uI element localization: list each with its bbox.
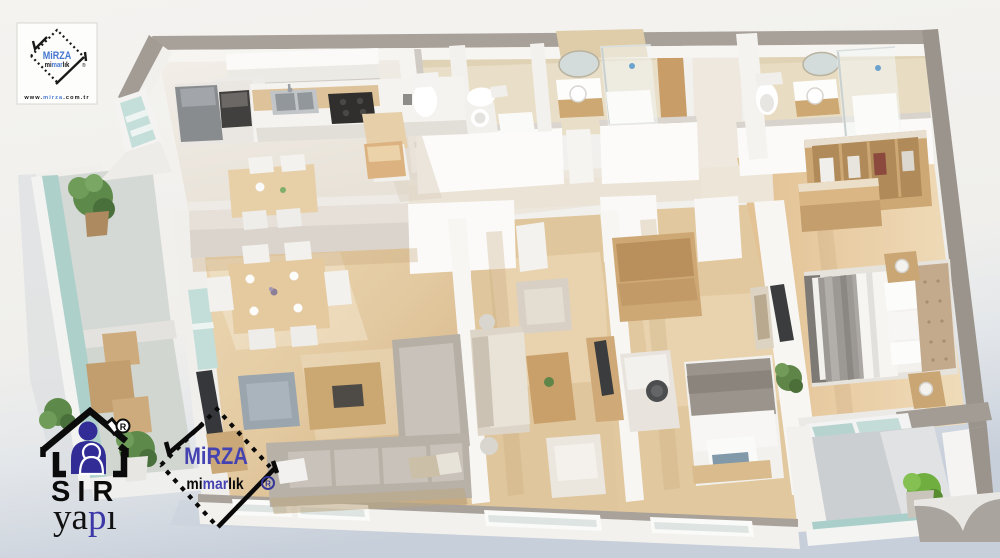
svg-text:mimarlık: mimarlık bbox=[45, 61, 70, 69]
svg-text:www.mirza.com.tr: www.mirza.com.tr bbox=[23, 95, 89, 101]
svg-text:mimarlık: mimarlık bbox=[186, 475, 244, 493]
svg-text:MiRZA: MiRZA bbox=[184, 442, 248, 469]
svg-text:MiRZA: MiRZA bbox=[43, 50, 72, 62]
svg-text:®: ® bbox=[82, 62, 86, 69]
svg-text:R: R bbox=[265, 480, 271, 489]
svg-text:yapı: yapı bbox=[53, 497, 117, 538]
svg-text:R: R bbox=[120, 422, 127, 432]
